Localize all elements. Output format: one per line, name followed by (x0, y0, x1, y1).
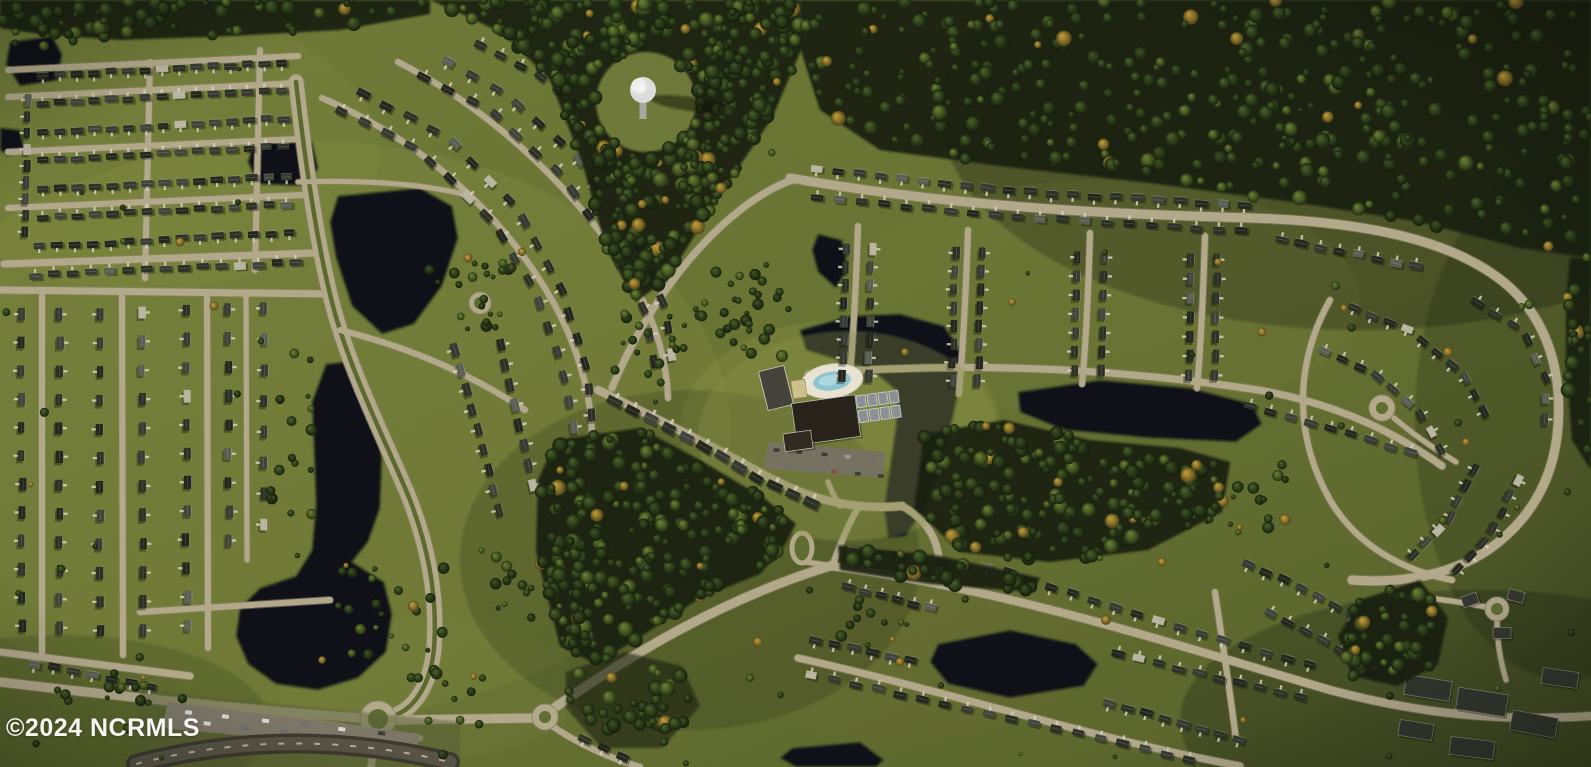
aerial-photo: ©2024 NCRMLS (0, 0, 1591, 767)
aerial-scene (0, 0, 1591, 767)
mls-watermark: ©2024 NCRMLS (6, 714, 200, 743)
effects-layer (0, 0, 1591, 767)
